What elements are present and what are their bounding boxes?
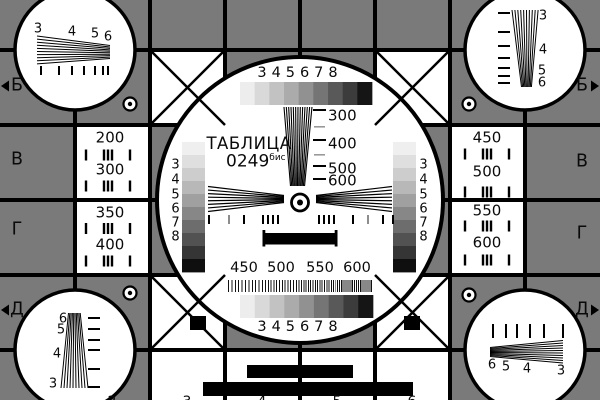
- bullseye-bottom-right-icon-dot: [467, 293, 471, 297]
- grayscale-label-bottom: 4: [272, 319, 281, 334]
- edge-digit-top: 3: [183, 0, 192, 3]
- corner-label-bottom-right: 5: [502, 361, 510, 374]
- grayscale-step-bottom: [284, 295, 299, 318]
- side-scale-label-left: 7: [171, 216, 179, 229]
- corner-tick-top-left: [71, 66, 73, 75]
- right-cell-ticks: [490, 149, 492, 160]
- right-cell-ticks: [508, 187, 510, 198]
- grayscale-label-bottom: 5: [286, 319, 295, 334]
- corner-tick-bottom-left: [88, 349, 100, 351]
- left-cell-ticks: [85, 256, 87, 267]
- right-cell-ticks: [482, 187, 484, 198]
- phase-tick: [262, 215, 264, 224]
- grayscale-step-bottom: [314, 295, 329, 318]
- corner-label-top-right: 6: [538, 77, 546, 90]
- corner-label-top-left: 5: [91, 28, 99, 41]
- left-cell-ticks: [129, 181, 131, 192]
- corner-tick-top-right: [498, 75, 510, 77]
- corner-label-top-right: 3: [539, 10, 547, 23]
- corner-circle-bottom-right: [465, 290, 585, 400]
- grayscale-step-top: [255, 82, 270, 105]
- wedge-scale-dash: [313, 109, 326, 111]
- corner-tick-top-right: [498, 12, 510, 14]
- phase-tick-gray: [228, 215, 230, 224]
- row-letter-right-b: Б: [576, 77, 588, 95]
- center-bar-left-cap: [263, 230, 266, 247]
- corner-tick-bottom-right: [529, 324, 531, 338]
- band-label-500: 500: [267, 261, 295, 276]
- grayscale-step-bottom: [240, 295, 255, 318]
- row-letter-right-g: Г: [577, 225, 588, 243]
- right-cell-ticks: [508, 255, 510, 266]
- grayscale-step-top: [240, 82, 255, 105]
- side-scale-label-right: 4: [419, 173, 427, 186]
- right-cell-ticks: [508, 221, 510, 232]
- wedge-scale-dash: [313, 165, 326, 167]
- corner-label-bottom-right: 4: [523, 363, 531, 376]
- side-scale-label-left: 5: [171, 188, 179, 201]
- corner-tick-bottom-left: [88, 339, 100, 341]
- grayscale-step-top: [299, 82, 314, 105]
- grayscale-label-bottom: 6: [300, 319, 309, 334]
- corner-tick-bottom-right: [492, 324, 494, 338]
- right-cell-ticks: [486, 221, 488, 232]
- row-letter-left-g: Г: [12, 221, 23, 239]
- right-cell-ticks: [486, 149, 488, 160]
- side-scale-step-left: [182, 155, 205, 168]
- corner-label-top-left: 6: [104, 31, 112, 44]
- corner-tick-bottom-left: [88, 368, 100, 370]
- corner-tick-bottom-right: [505, 324, 507, 338]
- side-scale-step-right: [393, 194, 416, 207]
- bullseye-top-right-icon-dot: [467, 102, 471, 106]
- grayscale-step-bottom: [299, 295, 314, 318]
- corner-tick-top-right: [498, 82, 510, 84]
- right-cell-ticks: [482, 221, 484, 232]
- corner-tick-bottom-left: [88, 386, 100, 388]
- grayscale-label-bottom: 8: [328, 319, 337, 334]
- right-cell-ticks: [490, 221, 492, 232]
- left-cell-ticks: [107, 181, 109, 192]
- phase-tick-gray: [367, 215, 369, 224]
- wedge-label-400: 400: [328, 137, 357, 152]
- phase-tick: [272, 215, 274, 224]
- side-scale-step-right: [393, 259, 416, 272]
- corner-fan-top-right-line: [527, 10, 528, 87]
- corner-tick-top-left: [102, 66, 104, 75]
- corner-tick-bottom-left: [88, 317, 100, 319]
- phase-tick: [243, 215, 245, 224]
- test-card-graphics: [0, 0, 600, 400]
- left-cell-ticks: [129, 150, 131, 161]
- grayscale-label-top: 3: [257, 66, 266, 81]
- card-number-text: 0249: [226, 152, 269, 172]
- grayscale-step-bottom: [343, 295, 358, 318]
- left-cell-ticks: [129, 223, 131, 234]
- lower-black-bar: [247, 365, 353, 378]
- left-cell-ticks: [111, 150, 113, 161]
- side-scale-step-right: [393, 142, 416, 155]
- left-cell-ticks: [103, 223, 105, 234]
- side-scale-step-right: [393, 181, 416, 194]
- left-cell-ticks: [107, 256, 109, 267]
- phase-tick: [382, 215, 384, 224]
- side-scale-label-right: 8: [419, 230, 427, 243]
- corner-tick-bottom-right: [516, 324, 518, 338]
- side-scale-step-left: [182, 207, 205, 220]
- grayscale-step-bottom: [255, 295, 270, 318]
- side-scale-label-right: 3: [419, 158, 427, 171]
- corner-label-top-left: 4: [68, 26, 76, 39]
- left-cell-ticks: [103, 256, 105, 267]
- side-scale-label-right: 5: [419, 188, 427, 201]
- left-cell-ticks: [111, 181, 113, 192]
- corner-label-bottom-left: 5: [57, 324, 65, 337]
- center-vertical-wedge-line: [296, 107, 297, 186]
- side-scale-label-left: 8: [171, 230, 179, 243]
- side-scale-label-left: 6: [171, 202, 179, 215]
- corner-label-bottom-right: 3: [557, 365, 565, 378]
- row-letter-left-d: Д: [10, 301, 24, 319]
- side-scale-step-left: [182, 246, 205, 259]
- side-scale-step-right: [393, 220, 416, 233]
- left-cell-200: 200: [96, 130, 125, 145]
- corner-label-top-left: 3: [34, 23, 42, 36]
- grayscale-step-top: [328, 82, 343, 105]
- edge-digit-bottom: 5: [333, 395, 342, 400]
- corner-label-bottom-left: 4: [53, 348, 61, 361]
- right-cell-ticks: [508, 149, 510, 160]
- corner-tick-top-left: [107, 66, 109, 75]
- left-cell-ticks: [107, 223, 109, 234]
- left-cell-400: 400: [96, 237, 125, 252]
- edge-digit-bottom: 4: [258, 395, 267, 400]
- wedge-label-300: 300: [328, 109, 357, 124]
- side-scale-step-left: [182, 259, 205, 272]
- band-label-450: 450: [230, 261, 258, 276]
- right-cell-ticks: [486, 255, 488, 266]
- side-scale-step-right: [393, 207, 416, 220]
- grayscale-step-bottom: [329, 295, 344, 318]
- corner-tick-top-right: [498, 31, 510, 33]
- wedge-label-600: 600: [328, 174, 357, 189]
- row-letter-right-v: В: [576, 153, 588, 171]
- center-black-bar: [264, 233, 336, 245]
- right-cell-600: 600: [473, 236, 502, 251]
- bullseye-bottom-left-icon-dot: [128, 291, 132, 295]
- wedge-scale-dash-minor: [314, 154, 325, 156]
- definition-band-450: [228, 280, 264, 292]
- phase-tick: [323, 215, 325, 224]
- corner-circle-top-left: [15, 0, 135, 110]
- card-number-suffix: бис: [269, 153, 285, 163]
- left-cell-ticks: [85, 150, 87, 161]
- side-scale-step-right: [393, 246, 416, 259]
- edge-digit-top: 6: [408, 0, 417, 3]
- edge-digit-top: 4: [258, 0, 267, 3]
- corner-tick-top-left: [94, 66, 96, 75]
- right-cell-ticks: [486, 187, 488, 198]
- phase-tick: [277, 215, 279, 224]
- wedge-scale-dash: [313, 139, 326, 141]
- grayscale-step-top: [357, 82, 372, 105]
- corner-tick-top-left: [83, 66, 85, 75]
- left-cell-300: 300: [96, 163, 125, 178]
- grayscale-label-top: 8: [328, 66, 337, 81]
- grayscale-label-bottom: 3: [257, 319, 266, 334]
- left-cell-ticks: [129, 256, 131, 267]
- band-label-550: 550: [306, 261, 334, 276]
- left-cell-ticks: [111, 223, 113, 234]
- black-square-right: [404, 316, 420, 330]
- corner-fan-bottom-right-line: [490, 353, 563, 354]
- test-card-0249: ТАБЛИЦА 0249бис 300 400 500 600 450 500 …: [0, 0, 600, 400]
- center-bullseye-icon-dot: [297, 200, 303, 206]
- side-scale-step-right: [393, 233, 416, 246]
- grayscale-step-bottom: [270, 295, 285, 318]
- side-scale-step-left: [182, 194, 205, 207]
- row-letter-left-b: Б: [11, 77, 23, 95]
- card-number: 0249бис: [226, 154, 286, 171]
- corner-fan-bottom-left-line: [73, 313, 74, 388]
- left-cell-ticks: [85, 181, 87, 192]
- definition-band-500: [265, 280, 300, 292]
- edge-digit-bottom: 3: [183, 395, 192, 400]
- grayscale-label-bottom: 7: [314, 319, 323, 334]
- left-cell-ticks: [111, 256, 113, 267]
- right-cell-ticks: [490, 187, 492, 198]
- corner-tick-top-right: [498, 45, 510, 47]
- phase-tick: [328, 215, 330, 224]
- side-scale-label-left: 4: [171, 173, 179, 186]
- wedge-scale-dash: [313, 178, 326, 180]
- card-title: ТАБЛИЦА: [206, 136, 291, 153]
- side-scale-step-right: [393, 168, 416, 181]
- grayscale-label-top: 6: [300, 66, 309, 81]
- phase-tick: [318, 215, 320, 224]
- edge-digit-top: 5: [333, 0, 342, 3]
- definition-band-550: [301, 280, 336, 292]
- grayscale-step-bottom: [358, 295, 373, 318]
- phase-tick: [267, 215, 269, 224]
- right-cell-450: 450: [473, 131, 502, 146]
- corner-label-top-right: 4: [539, 44, 547, 57]
- bottom-black-bar: [203, 382, 413, 396]
- edge-digit-bottom: 2: [108, 395, 117, 400]
- phase-tick: [352, 215, 354, 224]
- corner-label-bottom-left: 3: [49, 378, 57, 391]
- phase-tick: [208, 215, 210, 224]
- grayscale-label-top: 4: [272, 66, 281, 81]
- left-cell-350: 350: [96, 205, 125, 220]
- bullseye-top-left-icon-dot: [128, 102, 132, 106]
- side-scale-step-left: [182, 142, 205, 155]
- side-scale-step-left: [182, 233, 205, 246]
- black-square-left: [190, 316, 206, 330]
- corner-tick-bottom-right: [543, 324, 545, 338]
- right-cell-500: 500: [473, 164, 502, 179]
- right-cell-ticks: [464, 149, 466, 160]
- center-bar-right-cap: [335, 230, 338, 247]
- phase-tick: [392, 215, 394, 224]
- corner-tick-top-left: [40, 66, 42, 75]
- left-cell-ticks: [103, 150, 105, 161]
- side-scale-step-left: [182, 168, 205, 181]
- band-label-600: 600: [343, 261, 371, 276]
- left-cell-ticks: [103, 181, 105, 192]
- left-cell-ticks: [85, 223, 87, 234]
- edge-digit-bottom: 6: [408, 395, 417, 400]
- side-scale-step-left: [182, 181, 205, 194]
- row-letter-right-d: Д: [575, 301, 589, 319]
- side-scale-step-left: [182, 220, 205, 233]
- grayscale-step-top: [269, 82, 284, 105]
- corner-tick-top-left: [58, 66, 60, 75]
- grayscale-label-top: 7: [314, 66, 323, 81]
- edge-digit-top: 2: [108, 0, 117, 3]
- right-cell-ticks: [464, 187, 466, 198]
- definition-band-600: [337, 280, 373, 292]
- grayscale-label-top: 5: [286, 66, 295, 81]
- right-cell-ticks: [464, 255, 466, 266]
- side-scale-step-right: [393, 155, 416, 168]
- corner-tick-top-right: [498, 67, 510, 69]
- grayscale-step-top: [343, 82, 358, 105]
- right-cell-550: 550: [473, 204, 502, 219]
- wedge-scale-dash-minor: [314, 126, 325, 128]
- corner-tick-bottom-left: [88, 328, 100, 330]
- phase-tick: [333, 215, 335, 224]
- side-scale-label-right: 6: [419, 202, 427, 215]
- right-cell-ticks: [464, 221, 466, 232]
- corner-label-bottom-right: 6: [488, 359, 496, 372]
- side-scale-label-left: 3: [171, 158, 179, 171]
- side-scale-label-right: 7: [419, 216, 427, 229]
- corner-tick-top-right: [498, 57, 510, 59]
- grayscale-step-top: [313, 82, 328, 105]
- right-cell-ticks: [490, 255, 492, 266]
- right-cell-ticks: [482, 149, 484, 160]
- right-cell-ticks: [482, 255, 484, 266]
- corner-tick-bottom-right: [562, 324, 564, 338]
- left-cell-ticks: [107, 150, 109, 161]
- row-letter-left-v: В: [11, 151, 23, 169]
- grayscale-step-top: [284, 82, 299, 105]
